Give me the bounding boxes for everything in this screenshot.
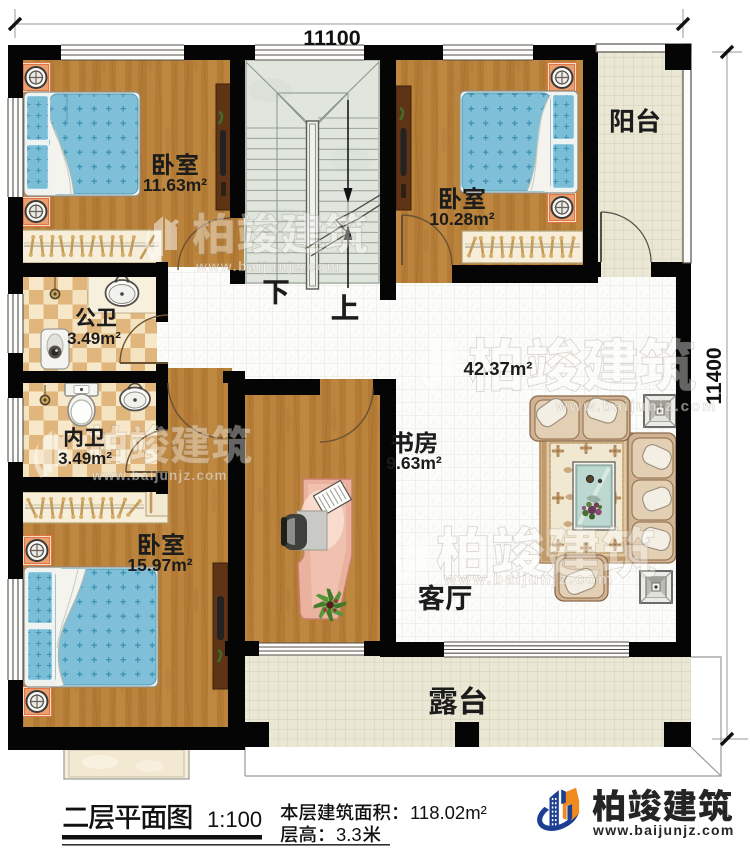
svg-text:42.37m²: 42.37m² (464, 358, 533, 379)
svg-text:118.02m²: 118.02m² (410, 802, 487, 823)
svg-text:3.49m²: 3.49m² (58, 449, 112, 468)
svg-text:www.baijunjz.com: www.baijunjz.com (555, 398, 717, 415)
svg-text:1:100: 1:100 (207, 807, 262, 832)
svg-text:3.3: 3.3 (336, 824, 362, 845)
svg-text:3.49m²: 3.49m² (67, 329, 121, 348)
svg-text:9.63m²: 9.63m² (386, 453, 442, 473)
svg-text:10.28m²: 10.28m² (429, 209, 494, 229)
svg-text:www.baijunjz.com: www.baijunjz.com (443, 571, 614, 588)
svg-text:11.63m²: 11.63m² (143, 175, 207, 195)
svg-text:11400: 11400 (703, 347, 726, 404)
svg-text:15.97m²: 15.97m² (127, 555, 192, 575)
svg-text:www.baijunjz.com: www.baijunjz.com (195, 258, 341, 274)
svg-text:www.baijunjz.com: www.baijunjz.com (592, 822, 735, 838)
svg-text:11100: 11100 (303, 26, 360, 50)
svg-text:www.baijunjz.com: www.baijunjz.com (91, 468, 228, 483)
